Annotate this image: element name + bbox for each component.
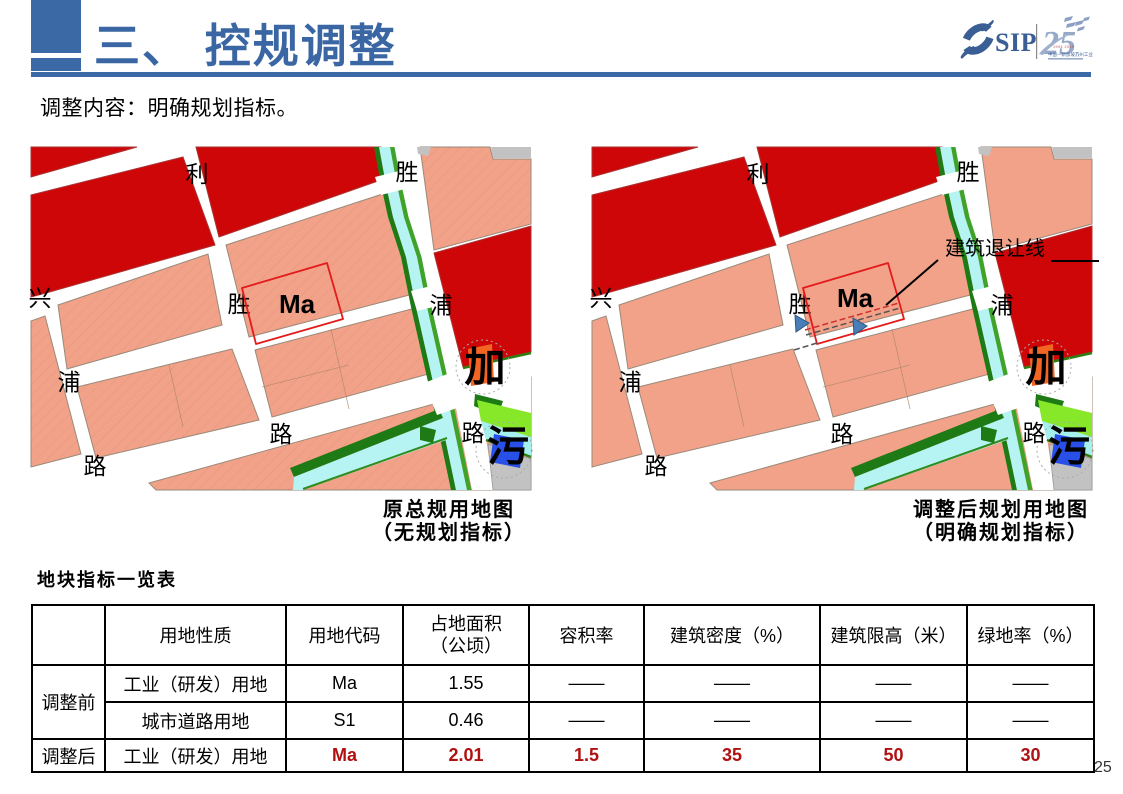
- svg-text:胜: 胜: [396, 159, 419, 185]
- svg-text:污: 污: [1048, 423, 1090, 470]
- svg-text:路: 路: [84, 453, 107, 479]
- svg-text:路: 路: [1023, 420, 1046, 446]
- svg-text:利: 利: [747, 161, 770, 187]
- svg-text:中国—新加坡苏州工业园区: 中国—新加坡苏州工业园区: [1048, 51, 1093, 58]
- svg-text:1994 2019: 1994 2019: [1053, 45, 1075, 49]
- svg-text:加: 加: [1026, 344, 1067, 390]
- svg-text:Ma: Ma: [837, 283, 874, 313]
- svg-text:加: 加: [465, 344, 506, 390]
- svg-text:胜: 胜: [957, 159, 980, 185]
- svg-text:SIP: SIP: [995, 28, 1037, 57]
- svg-text:路: 路: [270, 421, 293, 447]
- svg-text:浦: 浦: [619, 369, 642, 395]
- svg-text:利: 利: [186, 161, 209, 187]
- svg-text:兴: 兴: [590, 285, 613, 311]
- svg-text:污: 污: [487, 423, 529, 470]
- svg-text:胜: 胜: [228, 291, 251, 317]
- svg-text:浦: 浦: [430, 292, 453, 318]
- svg-text:路: 路: [831, 421, 854, 447]
- svg-text:浦: 浦: [58, 369, 81, 395]
- svg-text:Ma: Ma: [279, 289, 316, 319]
- svg-text:兴: 兴: [29, 285, 52, 311]
- svg-text:胜: 胜: [789, 291, 812, 317]
- svg-text:路: 路: [462, 420, 485, 446]
- svg-text:浦: 浦: [991, 292, 1014, 318]
- svg-text:建筑退让线: 建筑退让线: [945, 237, 1045, 260]
- svg-text:路: 路: [645, 453, 668, 479]
